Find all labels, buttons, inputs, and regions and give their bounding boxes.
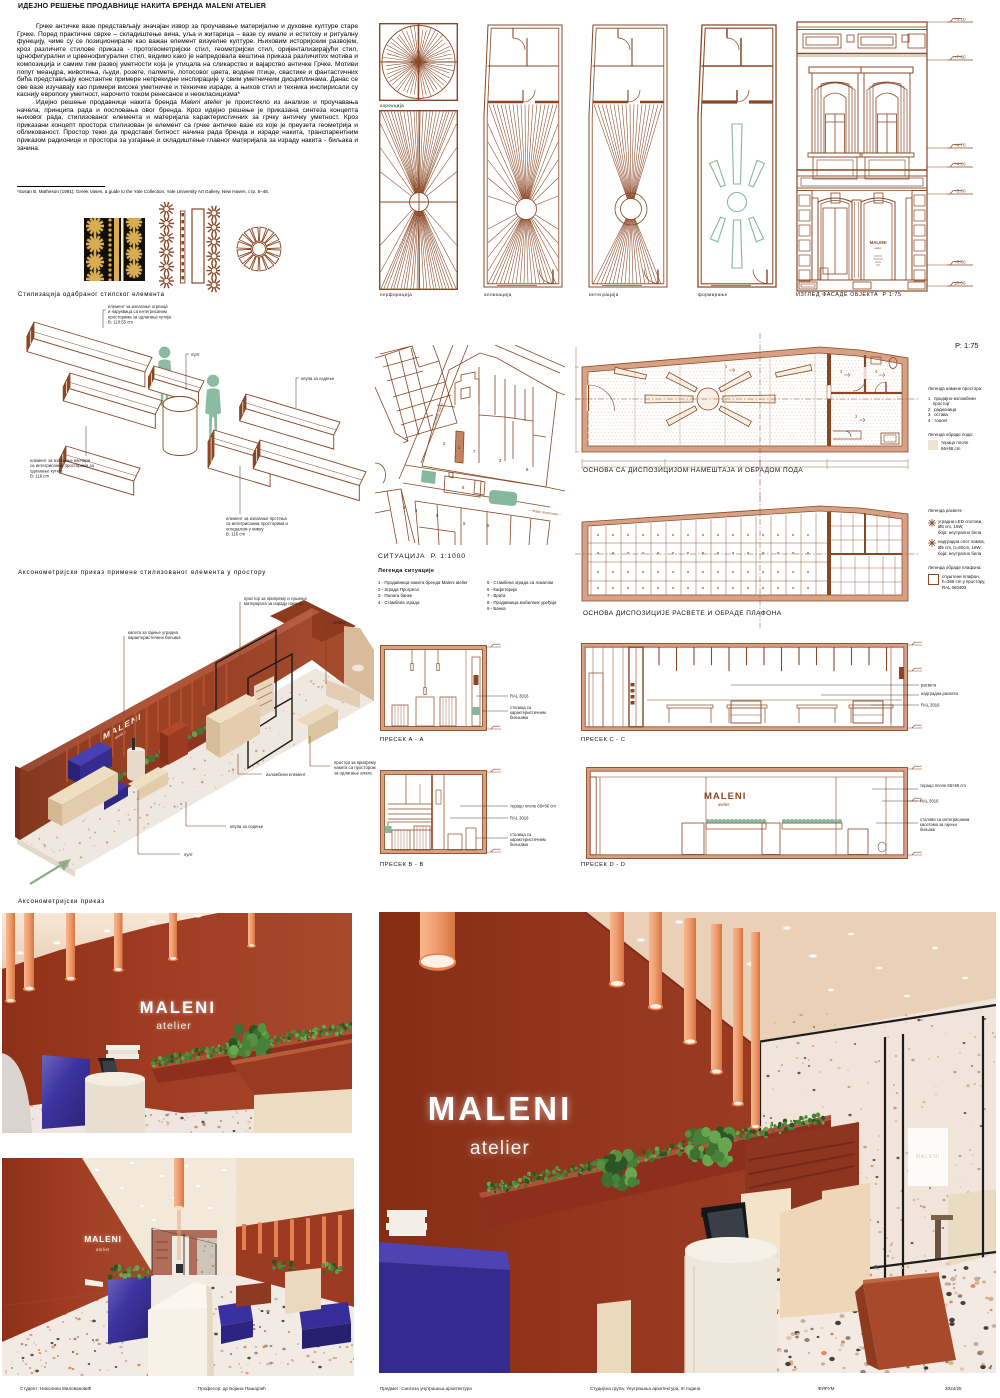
svg-text:+9.16: +9.16	[954, 18, 966, 22]
svg-text:терацо плоче 66×66 cm: терацо плоче 66×66 cm	[920, 783, 966, 788]
svg-text:тоалет: тоалет	[332, 620, 345, 625]
svg-text:MALENI: MALENI	[140, 999, 216, 1017]
svg-text:RAL 3016: RAL 3016	[920, 799, 939, 804]
svg-text:atelier: atelier	[874, 246, 881, 250]
svg-text:пулт: пулт	[191, 352, 200, 357]
svg-text:материјала за израду накита: материјала за израду накита	[244, 601, 302, 606]
svg-text:+0.66: +0.66	[954, 260, 966, 265]
svg-text:расвета: расвета	[921, 683, 937, 688]
svg-text:+7.66: +7.66	[954, 55, 966, 60]
svg-text:atelier: atelier	[96, 1247, 110, 1252]
svg-text:карактеристичних биљака: карактеристичних биљака	[128, 635, 181, 640]
svg-text:клупа за седење: клупа за седење	[230, 824, 264, 829]
svg-text:~~~Мајке Јевросиме~~: ~~~Мајке Јевросиме~~	[527, 508, 562, 517]
svg-text:RAL 3016: RAL 3016	[510, 694, 529, 699]
svg-text:6: 6	[462, 485, 465, 490]
svg-text:за одлагање алата: за одлагање алата	[334, 770, 372, 775]
svg-text:MALENI: MALENI	[870, 240, 887, 245]
svg-text:биљкама: биљкама	[510, 842, 529, 847]
svg-text:биљкама: биљкама	[510, 715, 529, 720]
svg-text:RAL 3016: RAL 3016	[921, 703, 940, 708]
svg-text:4: 4	[415, 508, 418, 513]
svg-text:8: 8	[526, 467, 529, 472]
svg-text:5: 5	[463, 521, 466, 526]
svg-text:±0.00: ±0.00	[954, 281, 966, 286]
svg-text:изложбени елемент: изложбени елемент	[266, 772, 306, 777]
svg-text:В: 116 cm: В: 116 cm	[226, 532, 245, 537]
svg-text:биљака: биљака	[920, 827, 936, 832]
svg-text:RAL 3016: RAL 3016	[510, 816, 529, 821]
svg-text:пулт: пулт	[184, 852, 193, 857]
svg-text:atelier: atelier	[718, 802, 730, 807]
svg-text:+4.76: +4.76	[954, 143, 966, 148]
svg-text:Булевар краља: Булевар краља	[432, 402, 444, 425]
svg-text:6: 6	[487, 523, 490, 528]
svg-text:клупа за седење: клупа за седење	[301, 376, 335, 381]
svg-text:7: 7	[473, 449, 476, 454]
svg-text:надградна расвета: надградна расвета	[921, 691, 959, 696]
svg-text:+4.06: +4.06	[954, 162, 966, 167]
svg-text:MALENI: MALENI	[84, 1234, 121, 1244]
svg-text:2: 2	[443, 441, 446, 446]
svg-text:терацо плоче 66×66 cm: терацо плоче 66×66 cm	[510, 804, 556, 809]
svg-text:В: 110.55 cm: В: 110.55 cm	[108, 320, 133, 325]
svg-text:3: 3	[499, 458, 502, 463]
svg-text:В: 116 cm: В: 116 cm	[30, 474, 49, 479]
svg-text:+3.66: +3.66	[954, 189, 966, 194]
svg-text:atelier: atelier	[156, 1020, 192, 1032]
svg-text:5: 5	[436, 513, 439, 518]
svg-text:MALENI: MALENI	[704, 791, 746, 802]
